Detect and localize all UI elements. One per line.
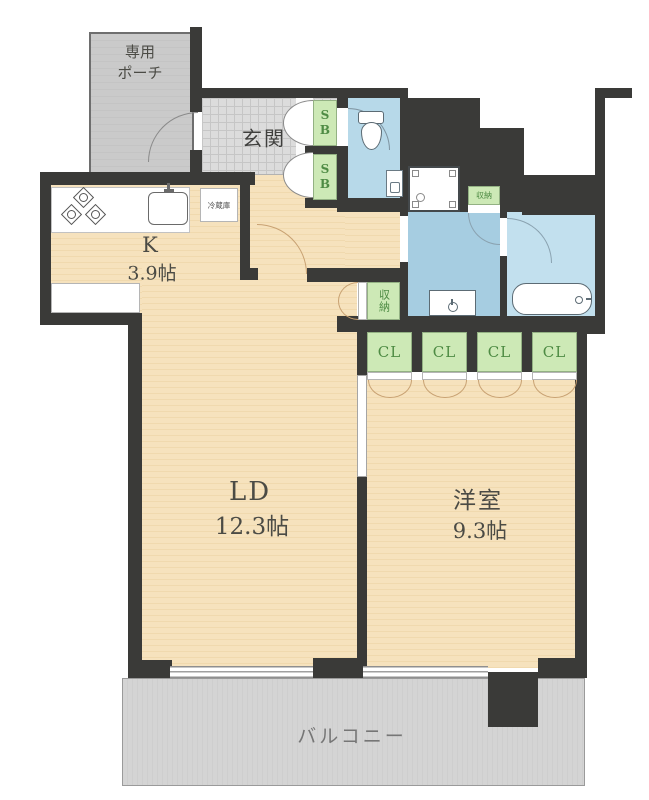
shoe-box-label: SB: [318, 108, 332, 138]
hall-storage: 収納: [367, 282, 400, 320]
kitchen-counter: [51, 283, 140, 313]
wall: [595, 88, 605, 332]
window: [363, 666, 488, 678]
floor-plan: SB SB 収納 収納 CL CL CL CL: [0, 0, 649, 800]
washing-machine-icon: [408, 166, 460, 212]
kitchen-faucet-icon: [164, 183, 174, 193]
closet-4: CL: [532, 332, 577, 372]
sliding-door: [357, 375, 367, 477]
closet-track: [532, 372, 577, 380]
hall-storage-label: 収納: [376, 289, 392, 313]
closet-2: CL: [422, 332, 467, 372]
western-room-name-label: 洋室: [453, 481, 503, 515]
wall: [128, 313, 142, 678]
living-dining-name-label: LD: [229, 477, 271, 507]
closet-label: CL: [378, 343, 401, 361]
storage-threshold: [358, 282, 367, 320]
closet-label: CL: [488, 343, 511, 361]
closet-label: CL: [433, 343, 456, 361]
balcony-label: バルコニー: [297, 722, 407, 749]
wall: [412, 332, 422, 372]
wall: [522, 332, 532, 372]
wall: [190, 27, 202, 112]
wall: [467, 332, 477, 372]
wall: [240, 268, 258, 280]
washroom-storage-label: 収納: [476, 190, 492, 201]
wall: [500, 208, 507, 218]
closet-1: CL: [367, 332, 412, 372]
wall: [400, 98, 480, 168]
washroom-storage-threshold: [468, 205, 500, 213]
living-dining-size-label: 12.3帖: [215, 507, 289, 541]
porch-label: 専用 ポーチ: [117, 41, 162, 83]
kitchen-size-label: 3.9帖: [127, 259, 176, 286]
shoe-box-label: SB: [318, 162, 332, 192]
wall: [40, 172, 51, 318]
wall: [337, 98, 348, 108]
wall: [307, 268, 402, 282]
closet-track: [367, 372, 412, 380]
wall: [128, 660, 172, 678]
stove-icon: [60, 190, 114, 232]
window: [170, 666, 313, 678]
refrigerator-label: 冷蔵庫: [208, 200, 231, 211]
closet-track: [422, 372, 467, 380]
wall: [400, 262, 408, 318]
wall: [313, 658, 363, 678]
wall: [595, 88, 632, 98]
wall: [40, 313, 142, 325]
toilet-basin-icon: [386, 170, 403, 197]
wall: [522, 175, 597, 215]
shoe-box-upper: SB: [313, 100, 337, 146]
bathtub-icon: [512, 283, 592, 315]
washroom-storage: 収納: [468, 186, 500, 205]
wall: [500, 256, 507, 318]
hallway-ext-floor: [345, 212, 400, 268]
kitchen-sink-icon: [148, 192, 188, 225]
porch-label-line2: ポーチ: [117, 62, 162, 83]
living-dining-floor: [142, 268, 357, 668]
porch-label-line1: 専用: [117, 41, 162, 62]
closet-track: [477, 372, 522, 380]
closet-label: CL: [543, 343, 566, 361]
wall: [575, 658, 587, 678]
entrance-label: 玄関: [242, 123, 286, 152]
wall: [40, 172, 255, 185]
wall: [202, 88, 408, 98]
wall: [357, 477, 367, 672]
vanity-sink-icon: [429, 290, 476, 316]
balcony-pillar: [488, 672, 538, 727]
closet-3: CL: [477, 332, 522, 372]
wall: [357, 320, 367, 375]
wall: [337, 198, 408, 212]
refrigerator-box: 冷蔵庫: [200, 188, 238, 222]
wall: [240, 175, 250, 275]
kitchen-name-label: K: [142, 233, 158, 257]
western-room-size-label: 9.3帖: [453, 515, 507, 545]
shoe-box-lower: SB: [313, 154, 337, 200]
